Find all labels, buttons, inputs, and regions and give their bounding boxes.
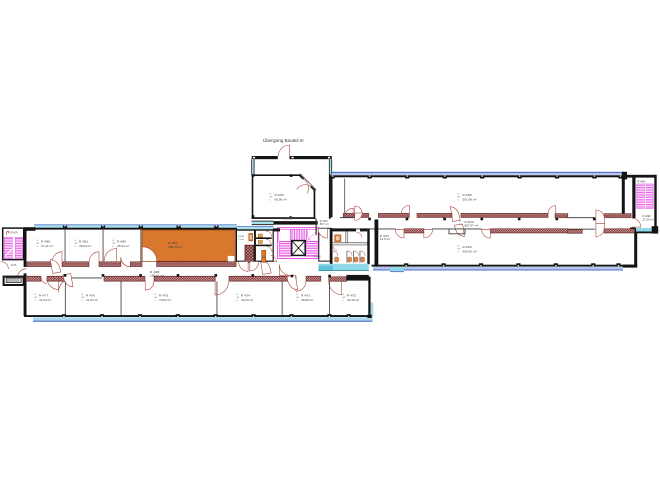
svg-text:R 4/1: R 4/1 — [11, 265, 17, 267]
svg-text:169,62 m²: 169,62 m² — [150, 273, 164, 277]
svg-text:7,2 m²: 7,2 m² — [238, 238, 244, 241]
svg-text:43,15 m²: 43,15 m² — [347, 298, 359, 302]
svg-text:186,33 m²: 186,33 m² — [168, 245, 182, 249]
svg-text:66,96 m²: 66,96 m² — [275, 197, 287, 201]
svg-text:41,04 m²: 41,04 m² — [86, 298, 98, 302]
svg-text:44,63 m²: 44,63 m² — [241, 298, 253, 302]
svg-text:28,64 m²: 28,64 m² — [79, 244, 91, 248]
svg-text:887,97 m²: 887,97 m² — [465, 223, 479, 227]
svg-text:28,64 m²: 28,64 m² — [117, 244, 129, 248]
svg-text:27,41 m²: 27,41 m² — [41, 244, 53, 248]
svg-text:41,04 m²: 41,04 m² — [39, 298, 51, 302]
svg-text:R 4/90: R 4/90 — [638, 180, 646, 184]
svg-text:58,7 m²: 58,7 m² — [320, 222, 329, 226]
svg-text:R 4/10: R 4/10 — [314, 256, 322, 259]
svg-text:591,98 m²: 591,98 m² — [463, 197, 477, 201]
svg-text:Übergang Bauteil III: Übergang Bauteil III — [263, 137, 304, 143]
svg-text:550,46 m²: 550,46 m² — [463, 249, 477, 253]
svg-text:70,84 m²: 70,84 m² — [159, 298, 171, 302]
svg-text:R 4/70: R 4/70 — [11, 232, 19, 235]
svg-text:12,5 m²: 12,5 m² — [380, 237, 391, 241]
svg-text:38,86 m²: 38,86 m² — [301, 298, 313, 302]
svg-text:17,25 m²: 17,25 m² — [643, 218, 654, 222]
